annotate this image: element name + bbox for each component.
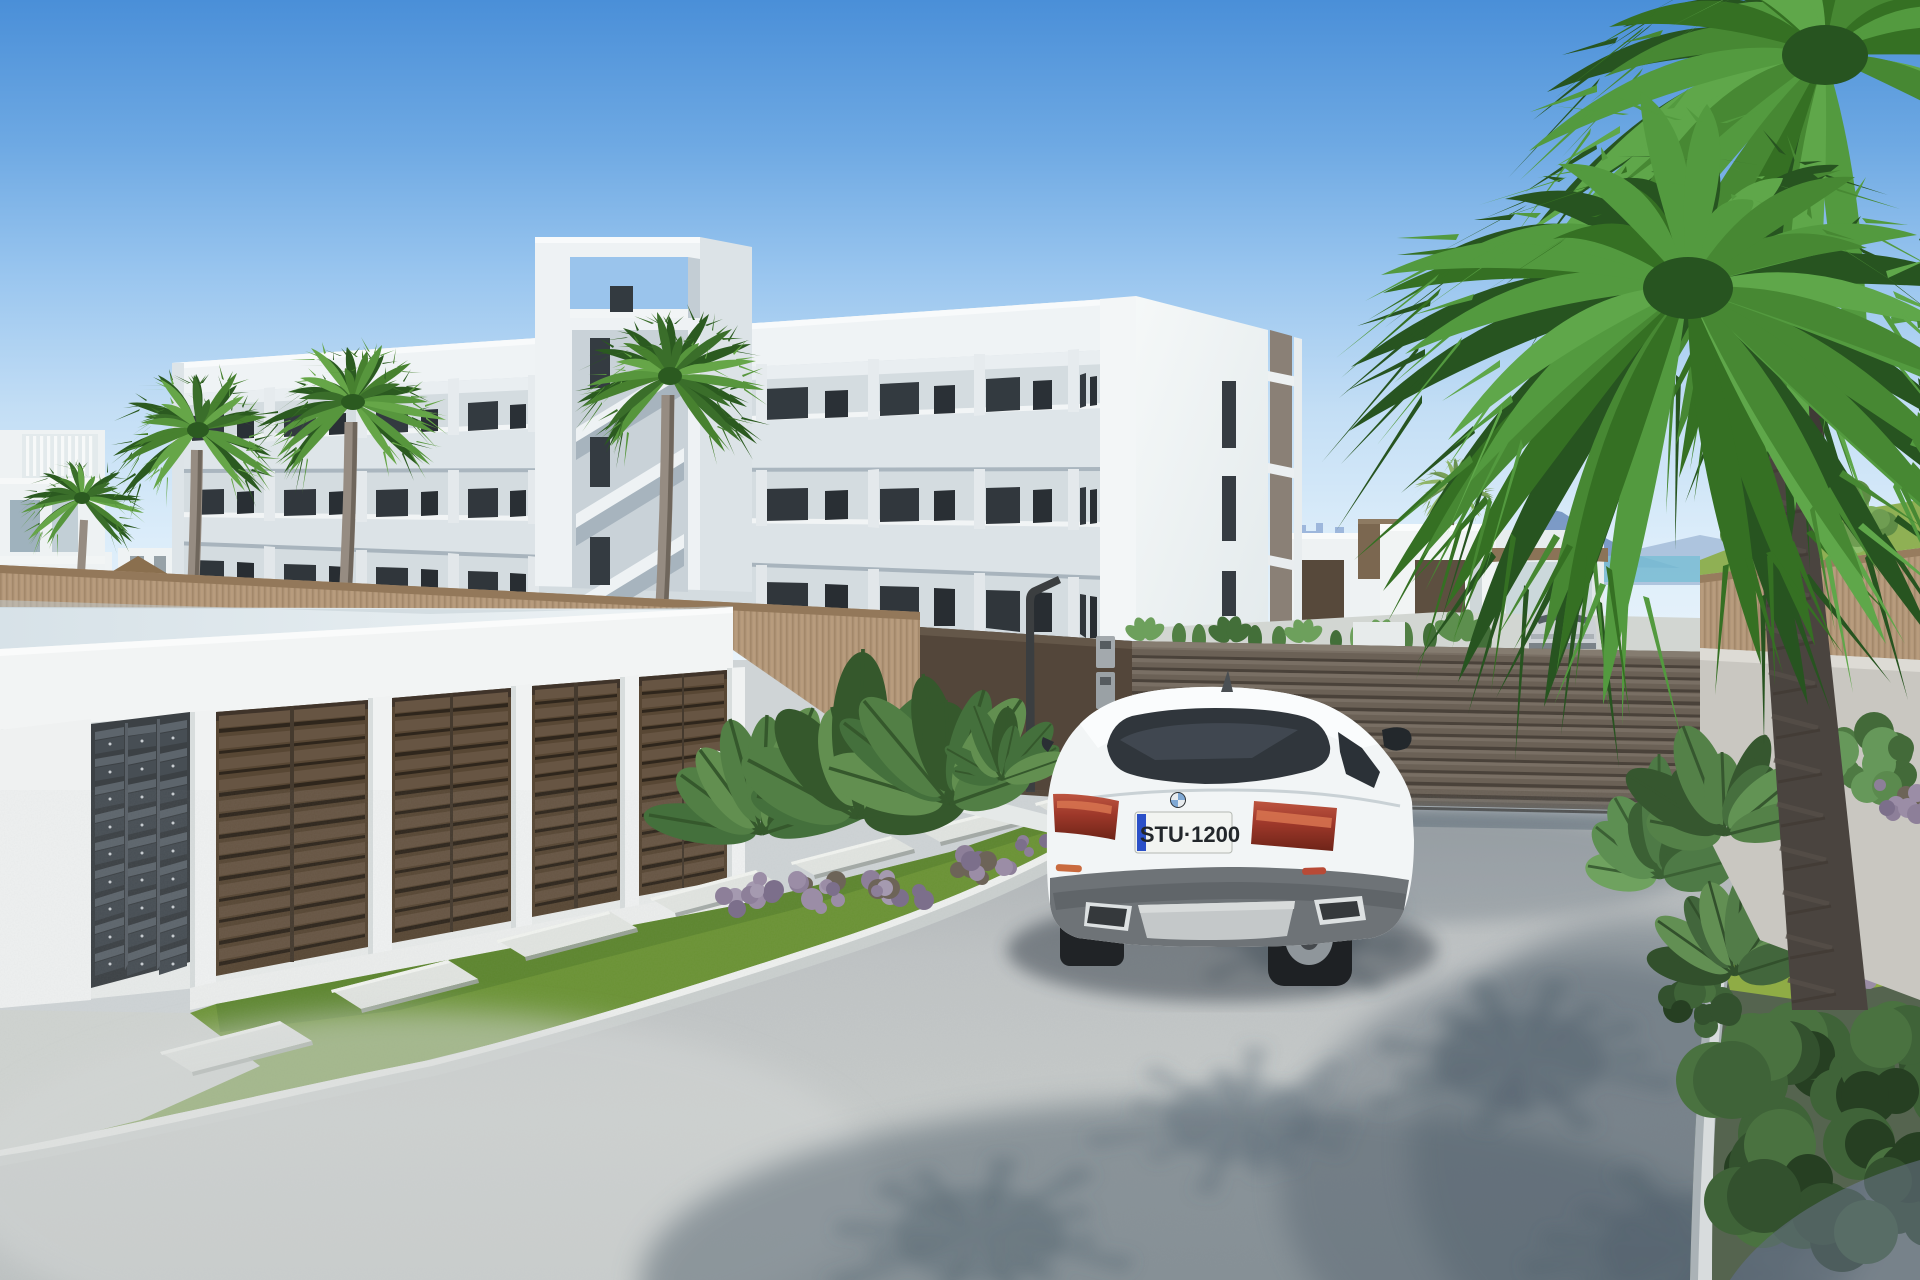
svg-text:STU·1200: STU·1200 — [1140, 822, 1240, 847]
